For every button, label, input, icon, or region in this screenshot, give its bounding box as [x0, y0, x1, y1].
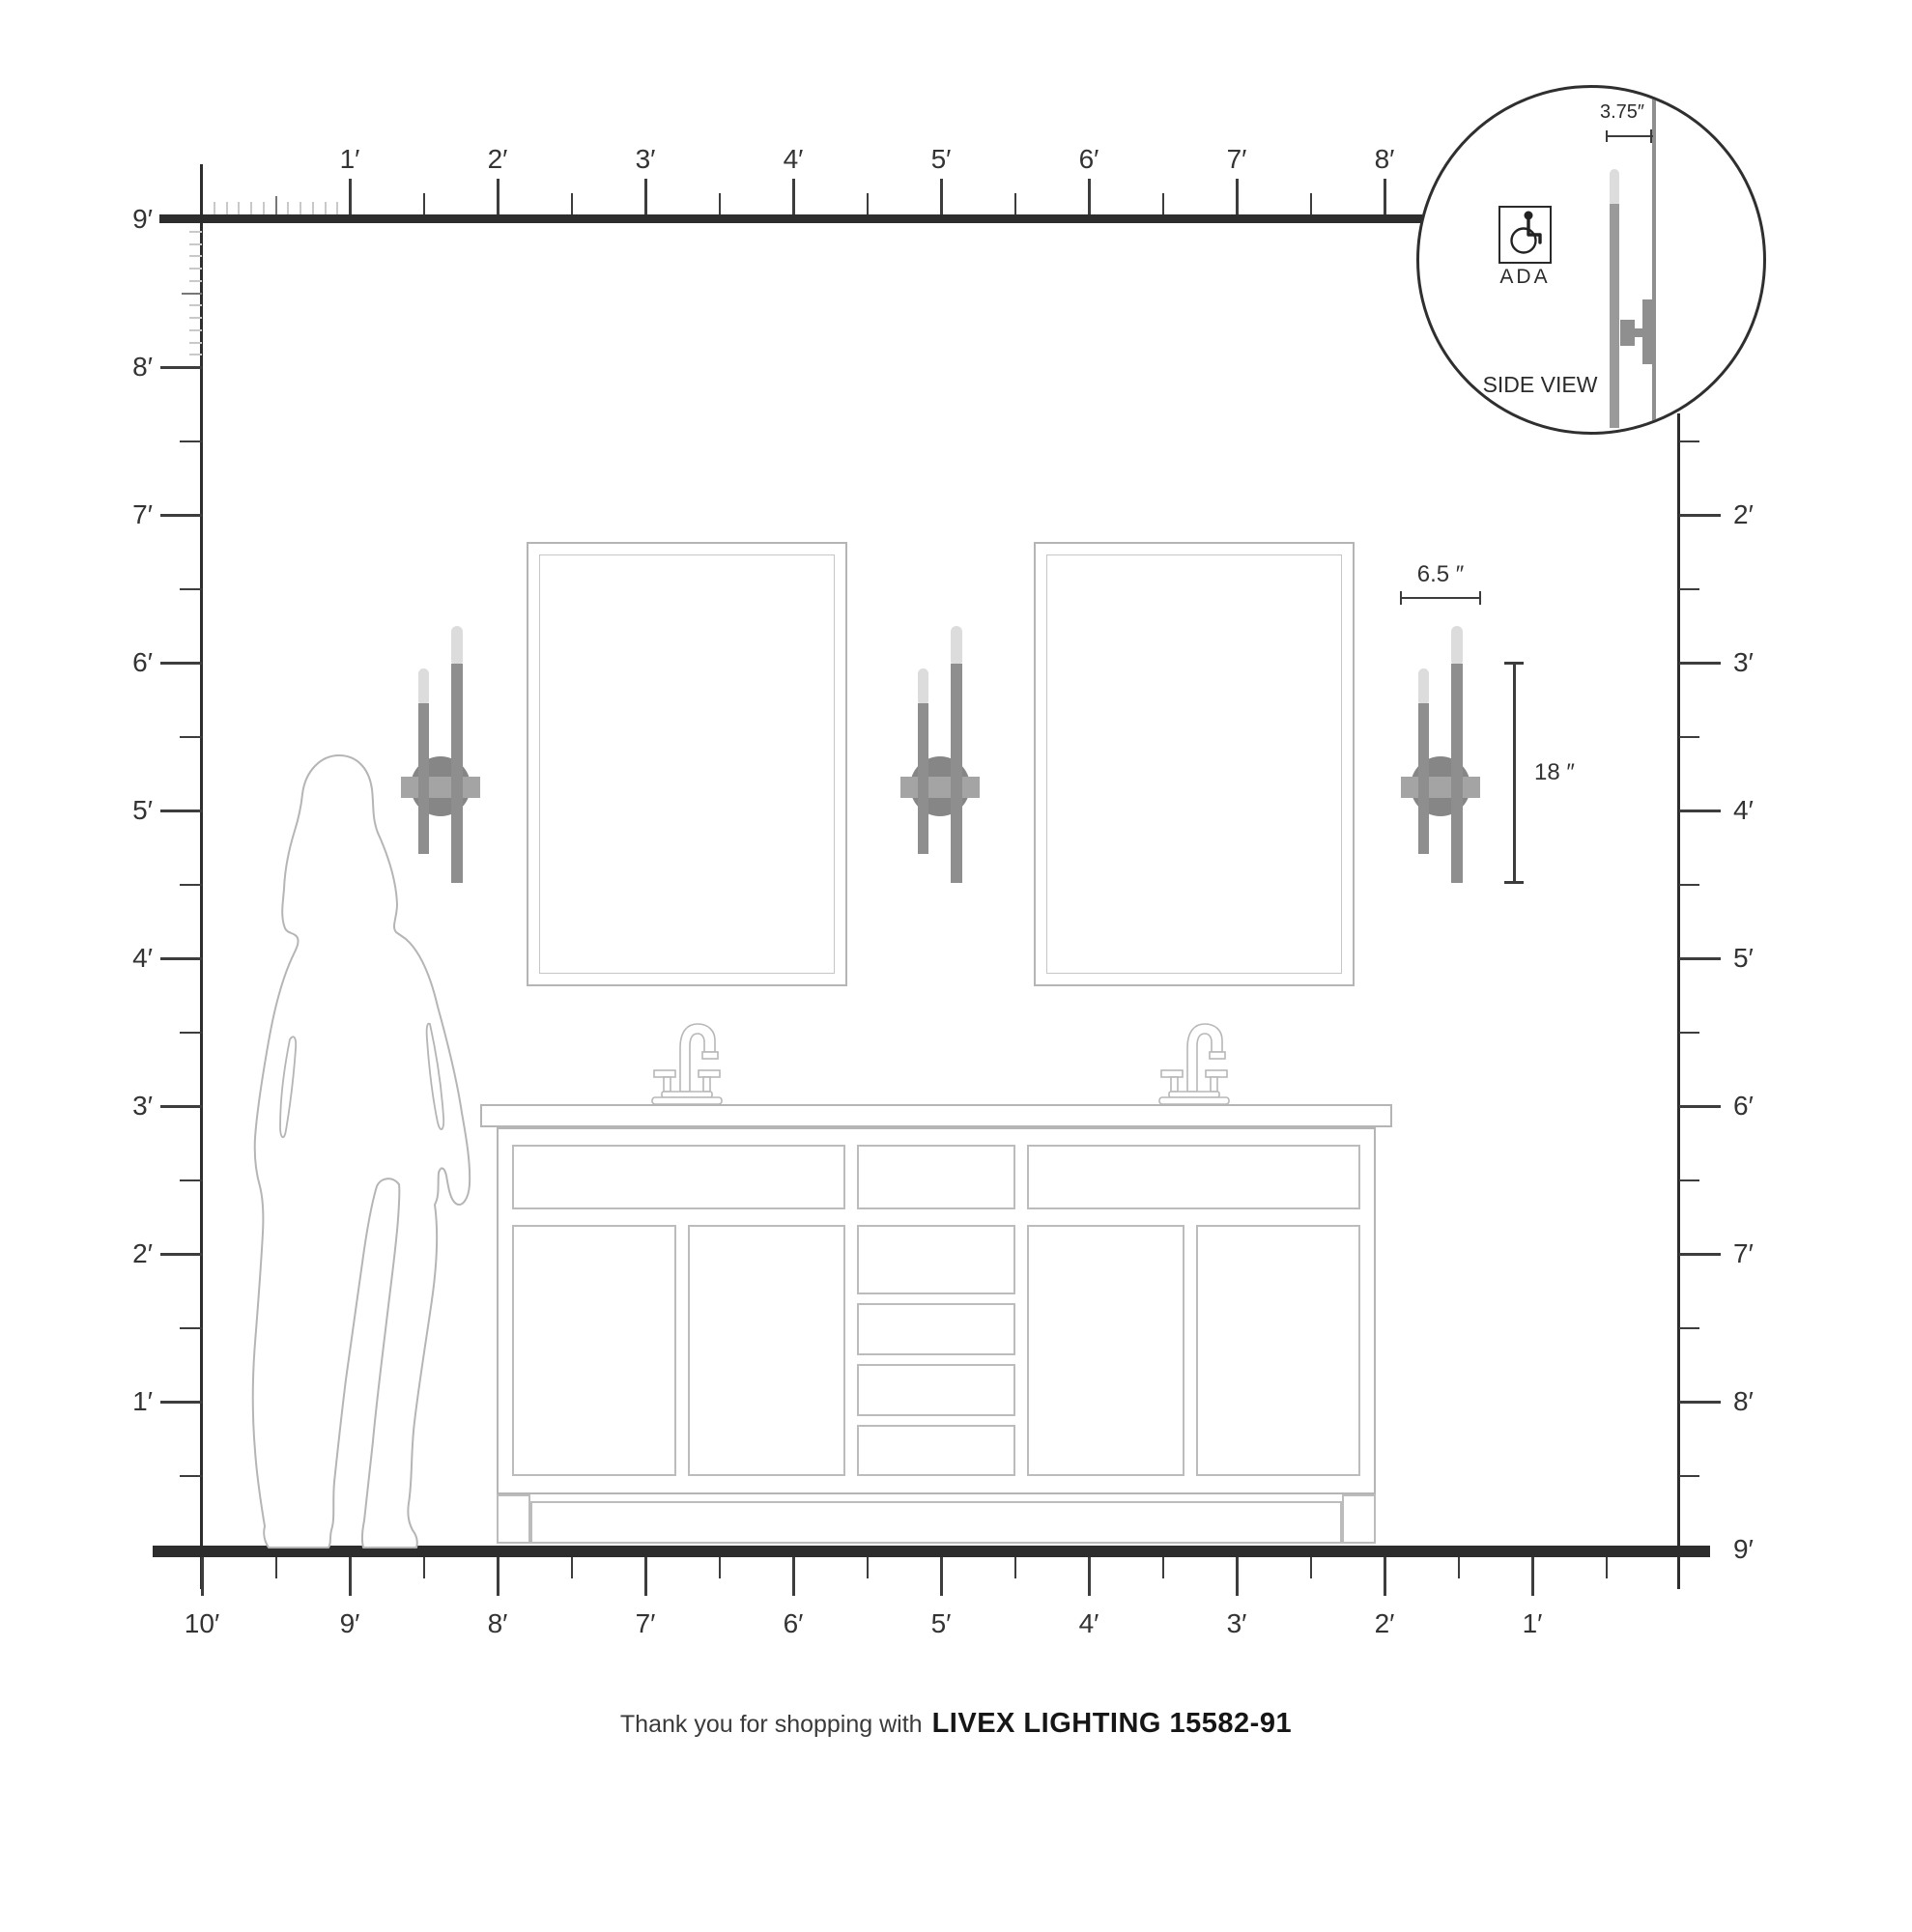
inset-sconce-wall-plate — [1642, 299, 1653, 364]
sconce-bulb-short — [1418, 668, 1429, 703]
footer-text: Thank you for shopping with LIVEX LIGHTI… — [0, 1708, 1912, 1740]
ruler-tick-minor — [1679, 440, 1699, 443]
ruler-tick-inch — [300, 202, 301, 214]
ruler-tick-minor — [867, 1557, 870, 1578]
ruler-tick-minor — [180, 588, 202, 591]
vanity-drawer-3 — [857, 1364, 1015, 1416]
ruler-label: 5′ — [902, 1607, 980, 1640]
ruler-label: 8′ — [85, 351, 153, 384]
ada-badge — [1498, 206, 1552, 264]
vanity-foot-right — [1342, 1494, 1376, 1544]
side-view-label: SIDE VIEW — [1463, 372, 1617, 398]
ruler-tick-major — [1531, 1557, 1534, 1596]
ruler-tick-major — [1384, 179, 1386, 214]
ruler-tick-major — [497, 179, 499, 214]
ruler-tick-major — [1236, 179, 1239, 214]
ruler-label: 10′ — [163, 1607, 241, 1640]
ruler-label: 2′ — [1733, 498, 1801, 531]
ruler-tick-major — [201, 1557, 204, 1596]
ruler-tick-minor — [180, 1032, 202, 1035]
ruler-tick-inch — [189, 354, 202, 355]
ruler-tick-minor — [867, 193, 870, 214]
ruler-tick-minor — [1679, 736, 1699, 739]
ruler-label: 7′ — [1198, 143, 1275, 176]
ruler-tick-major — [1679, 514, 1721, 517]
ruler-tick-major — [644, 1557, 647, 1596]
ceiling-line — [159, 214, 1422, 223]
ruler-tick-major — [1088, 1557, 1091, 1596]
vanity-drawer-4 — [857, 1425, 1015, 1476]
ruler-tick-minor — [180, 440, 202, 443]
ruler-tick-inch — [250, 202, 252, 214]
ruler-tick-minor — [1679, 1475, 1699, 1478]
ruler-tick-major — [497, 1557, 499, 1596]
ruler-tick-inch — [189, 243, 202, 245]
ruler-label: 3′ — [1198, 1607, 1275, 1640]
ruler-tick-inch — [214, 202, 215, 214]
fixture-width-dim-label: 6.5 ″ — [1383, 561, 1498, 588]
sconce-bulb-tall — [451, 626, 463, 664]
inset-sconce-mount-block — [1620, 320, 1635, 346]
ruler-tick-minor — [1679, 1032, 1699, 1035]
ruler-label: 6′ — [1050, 143, 1127, 176]
ruler-tick-minor — [1014, 1557, 1017, 1578]
ruler-label: 9′ — [85, 203, 153, 236]
vanity-false-front-right — [1027, 1145, 1360, 1209]
sconce-arm-bar — [401, 777, 480, 798]
sconce-left — [401, 626, 480, 883]
ruler-tick-major — [1384, 1557, 1386, 1596]
ruler-tick-inch — [189, 255, 202, 257]
ruler-tick-halffoot — [275, 196, 277, 214]
ruler-label: 3′ — [1733, 646, 1801, 679]
ruler-label: 3′ — [607, 143, 684, 176]
ruler-tick-minor — [180, 1327, 202, 1330]
ruler-label: 8′ — [459, 1607, 536, 1640]
ruler-label: 7′ — [85, 498, 153, 531]
ruler-label: 2′ — [459, 143, 536, 176]
dimension-diagram: 1′2′3′4′5′6′7′8′ 10′9′8′7′6′5′4′3′2′1′ 9… — [0, 0, 1912, 1932]
ruler-tick-major — [1679, 1401, 1721, 1404]
sconce-rod-short — [1418, 703, 1429, 854]
ruler-tick-minor — [423, 193, 426, 214]
ruler-tick-major — [160, 1253, 202, 1256]
ruler-tick-inch — [189, 231, 202, 233]
ruler-tick-major — [940, 1557, 943, 1596]
footer-thankyou-text: Thank you for shopping with — [620, 1711, 923, 1739]
ruler-label: 1′ — [1494, 1607, 1571, 1640]
ruler-tick-major — [160, 662, 202, 665]
ruler-tick-minor — [719, 193, 722, 214]
sconce-bulb-short — [418, 668, 429, 703]
vanity-door-left-outer — [512, 1225, 676, 1476]
ruler-tick-inch — [263, 202, 265, 214]
ruler-tick-minor — [571, 1557, 574, 1578]
ruler-label: 4′ — [85, 942, 153, 975]
ruler-tick-minor — [1679, 588, 1699, 591]
ruler-tick-minor — [1679, 884, 1699, 887]
ruler-tick-major — [792, 1557, 795, 1596]
ruler-tick-major — [1236, 1557, 1239, 1596]
ruler-tick-major — [349, 179, 352, 214]
vanity-door-right-outer — [1196, 1225, 1360, 1476]
ruler-tick-major — [160, 366, 202, 369]
fixture-width-dim-tick-left — [1400, 591, 1402, 605]
ruler-tick-major — [1088, 179, 1091, 214]
ruler-tick-major — [160, 1105, 202, 1108]
ruler-label: 4′ — [755, 143, 832, 176]
ruler-tick-major — [160, 514, 202, 517]
vanity-drawer-2 — [857, 1303, 1015, 1355]
faucet-left — [639, 1017, 735, 1106]
ruler-tick-major — [160, 957, 202, 960]
fixture-height-dim-line — [1513, 664, 1516, 883]
ruler-label: 1′ — [311, 143, 388, 176]
ruler-label: 9′ — [311, 1607, 388, 1640]
sconce-rod-tall — [951, 664, 962, 883]
sconce-center — [900, 626, 980, 883]
ruler-label: 6′ — [85, 646, 153, 679]
inset-depth-dim-label: 3.75″ — [1574, 101, 1670, 124]
ruler-label: 8′ — [1733, 1385, 1801, 1418]
ruler-tick-minor — [1310, 1557, 1313, 1578]
ruler-label: 4′ — [1050, 1607, 1127, 1640]
fixture-height-dim-label: 18 ″ — [1534, 759, 1621, 786]
ruler-tick-minor — [180, 1179, 202, 1182]
ruler-tick-inch — [189, 329, 202, 331]
ruler-tick-minor — [1014, 193, 1017, 214]
inset-wall-line — [1652, 88, 1656, 435]
sconce-bulb-tall — [951, 626, 962, 664]
footer-brand-model-text: LIVEX LIGHTING 15582-91 — [932, 1708, 1293, 1740]
sconce-bulb-tall — [1451, 626, 1463, 664]
ruler-label: 5′ — [1733, 942, 1801, 975]
ruler-tick-major — [1679, 1253, 1721, 1256]
sconce-arm-bar — [900, 777, 980, 798]
ruler-label: 7′ — [607, 1607, 684, 1640]
sconce-rod-short — [918, 703, 928, 854]
sconce-bulb-short — [918, 668, 928, 703]
vanity-false-front-left — [512, 1145, 845, 1209]
ruler-tick-minor — [275, 1557, 278, 1578]
ruler-label: 5′ — [902, 143, 980, 176]
ruler-tick-minor — [719, 1557, 722, 1578]
ruler-tick-major — [1679, 662, 1721, 665]
ruler-tick-major — [940, 179, 943, 214]
faucet-right — [1146, 1017, 1242, 1106]
ruler-label: 6′ — [755, 1607, 832, 1640]
sconce-rod-tall — [451, 664, 463, 883]
ruler-tick-minor — [1679, 1327, 1699, 1330]
fixture-height-dim-tick-bottom — [1504, 881, 1524, 884]
mirror-left-inner-frame — [539, 554, 835, 974]
fixture-width-dim-tick-right — [1479, 591, 1481, 605]
vanity-drawer-1 — [857, 1225, 1015, 1294]
vanity-foot-left — [497, 1494, 530, 1544]
ruler-tick-minor — [423, 1557, 426, 1578]
left-wall-line — [200, 164, 203, 1589]
fixture-height-dim-tick-top — [1504, 662, 1524, 665]
ruler-tick-major — [349, 1557, 352, 1596]
sconce-arm-bar — [1401, 777, 1480, 798]
ruler-label: 1′ — [85, 1385, 153, 1418]
sconce-rod-short — [418, 703, 429, 854]
ruler-tick-inch — [312, 202, 314, 214]
ruler-tick-inch — [189, 342, 202, 344]
sconce-right — [1401, 626, 1480, 883]
ruler-label: 5′ — [85, 794, 153, 827]
ruler-label: 3′ — [85, 1090, 153, 1122]
ruler-tick-inch — [287, 202, 289, 214]
inset-sconce-bulb — [1610, 169, 1619, 204]
ruler-tick-inch — [189, 268, 202, 270]
ruler-tick-inch — [226, 202, 228, 214]
ruler-tick-inch — [189, 304, 202, 306]
inset-depth-dim-line — [1607, 135, 1653, 137]
side-view-inset: 3.75″ ADA SIDE VIEW — [1416, 85, 1766, 435]
ruler-tick-major — [1679, 957, 1721, 960]
ruler-label: 6′ — [1733, 1090, 1801, 1122]
inset-depth-dim-tick-right — [1650, 129, 1652, 143]
ada-label: ADA — [1489, 266, 1561, 289]
ruler-tick-major — [644, 179, 647, 214]
ruler-tick-halffoot — [182, 293, 202, 295]
ruler-tick-major — [1679, 1105, 1721, 1108]
vanity-door-left-inner — [688, 1225, 845, 1476]
vanity-drawer-top-center — [857, 1145, 1015, 1209]
ruler-tick-minor — [1310, 193, 1313, 214]
vanity-door-right-inner — [1027, 1225, 1184, 1476]
ruler-tick-minor — [180, 884, 202, 887]
ruler-tick-minor — [1679, 1179, 1699, 1182]
ruler-tick-major — [160, 1401, 202, 1404]
ruler-label: 4′ — [1733, 794, 1801, 827]
inset-depth-dim-tick-left — [1606, 130, 1608, 142]
ruler-label: 2′ — [85, 1237, 153, 1270]
wheelchair-icon — [1500, 208, 1549, 261]
ruler-tick-minor — [571, 193, 574, 214]
ruler-label: 8′ — [1346, 143, 1423, 176]
ruler-tick-minor — [1606, 1557, 1609, 1578]
ruler-tick-major — [160, 810, 202, 812]
ruler-label: 2′ — [1346, 1607, 1423, 1640]
sconce-rod-tall — [1451, 664, 1463, 883]
fixture-width-dim-line — [1401, 597, 1480, 599]
ruler-tick-inch — [189, 280, 202, 282]
ruler-tick-major — [1679, 810, 1721, 812]
ruler-tick-minor — [1458, 1557, 1461, 1578]
mirror-right-inner-frame — [1046, 554, 1342, 974]
ruler-tick-inch — [336, 202, 338, 214]
ruler-tick-minor — [180, 736, 202, 739]
ruler-tick-minor — [180, 1475, 202, 1478]
ruler-tick-major — [792, 179, 795, 214]
ruler-label: 7′ — [1733, 1237, 1801, 1270]
ruler-tick-inch — [325, 202, 327, 214]
ruler-label: 9′ — [1733, 1533, 1801, 1566]
ruler-tick-inch — [189, 317, 202, 319]
ruler-tick-inch — [238, 202, 240, 214]
vanity-countertop — [480, 1104, 1392, 1127]
ruler-tick-minor — [1162, 1557, 1165, 1578]
ruler-tick-minor — [1162, 193, 1165, 214]
vanity-toe-kick — [530, 1501, 1342, 1544]
